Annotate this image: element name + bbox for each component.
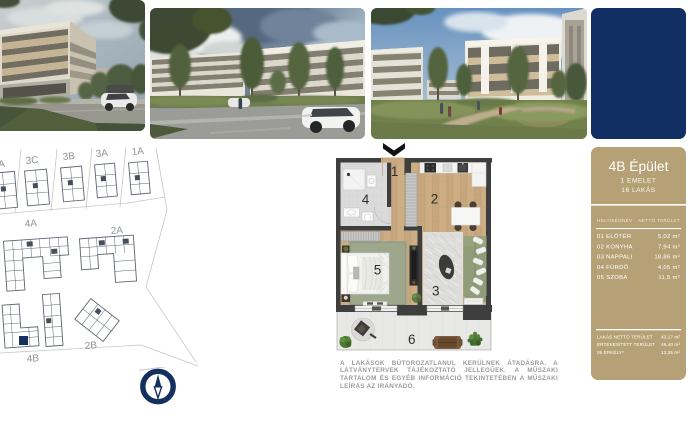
svg-text:04 FÜRDŐ: 04 FÜRDŐ bbox=[597, 264, 629, 271]
svg-text:5,02 m²: 5,02 m² bbox=[658, 234, 680, 240]
svg-text:05 SZOBA: 05 SZOBA bbox=[597, 275, 628, 281]
svg-text:4: 4 bbox=[362, 192, 370, 207]
svg-text:12,35 m²: 12,35 m² bbox=[661, 350, 680, 355]
svg-text:46,40 m²: 46,40 m² bbox=[661, 342, 680, 347]
svg-text:2B: 2B bbox=[84, 340, 97, 352]
svg-text:1 EMELET: 1 EMELET bbox=[621, 178, 657, 185]
svg-text:43,17 m²: 43,17 m² bbox=[661, 335, 680, 340]
svg-text:02 KONYHA: 02 KONYHA bbox=[597, 244, 633, 250]
svg-text:ÉRTÉKESÍTETT TERÜLET: ÉRTÉKESÍTETT TERÜLET bbox=[597, 341, 655, 347]
svg-text:1: 1 bbox=[391, 164, 399, 179]
svg-text:4B: 4B bbox=[26, 353, 39, 365]
svg-text:6: 6 bbox=[408, 332, 416, 347]
svg-text:16 LAKÁS: 16 LAKÁS bbox=[621, 185, 656, 194]
svg-text:4,05 m²: 4,05 m² bbox=[658, 265, 680, 271]
svg-text:3A: 3A bbox=[95, 148, 108, 160]
svg-text:7,94 m²: 7,94 m² bbox=[658, 244, 680, 250]
svg-text:3B: 3B bbox=[62, 151, 75, 163]
svg-text:1A: 1A bbox=[131, 146, 144, 158]
svg-text:5: 5 bbox=[374, 263, 382, 278]
svg-text:2A: 2A bbox=[110, 225, 123, 237]
svg-text:01 ELŐTÉR: 01 ELŐTÉR bbox=[597, 233, 631, 240]
svg-text:LAKÁS NETTÓ TERÜLET: LAKÁS NETTÓ TERÜLET bbox=[597, 334, 653, 340]
svg-text:18,86 m²: 18,86 m² bbox=[654, 255, 680, 261]
svg-text:4B Épület: 4B Épület bbox=[609, 158, 669, 174]
svg-text:3: 3 bbox=[432, 284, 440, 299]
svg-text:4A: 4A bbox=[24, 218, 37, 230]
svg-text:3A: 3A bbox=[0, 159, 6, 171]
svg-text:06 ERKÉLY*: 06 ERKÉLY* bbox=[597, 349, 624, 355]
svg-text:3C: 3C bbox=[25, 155, 39, 167]
svg-text:NETTÓ TERÜLET: NETTÓ TERÜLET bbox=[638, 217, 680, 223]
svg-text:HELYISÉGNÉV: HELYISÉGNÉV bbox=[597, 217, 633, 223]
svg-text:2: 2 bbox=[431, 192, 439, 207]
svg-text:03 NAPPALI: 03 NAPPALI bbox=[597, 255, 633, 261]
svg-text:11,5 m²: 11,5 m² bbox=[658, 275, 680, 281]
